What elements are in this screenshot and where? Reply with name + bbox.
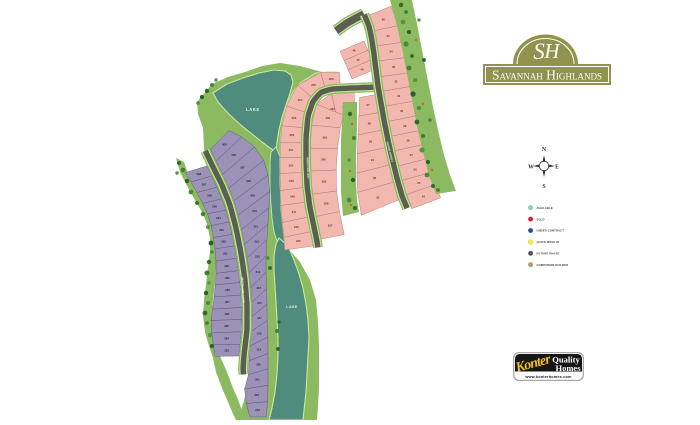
svg-text:310: 310	[252, 209, 257, 213]
svg-text:36: 36	[382, 17, 386, 21]
svg-text:LAKE: LAKE	[286, 305, 298, 309]
svg-text:289: 289	[225, 276, 230, 280]
svg-text:27: 27	[410, 153, 414, 157]
svg-text:315: 315	[256, 286, 261, 290]
svg-text:S: S	[542, 184, 545, 190]
svg-text:255: 255	[311, 83, 316, 87]
svg-text:285: 285	[224, 324, 229, 328]
svg-text:317: 317	[257, 316, 262, 320]
svg-text:311: 311	[253, 225, 258, 229]
svg-text:28: 28	[406, 138, 410, 142]
svg-text:COMPANION BUILDER: COMPANION BUILDER	[537, 263, 569, 267]
svg-text:318: 318	[257, 332, 262, 336]
svg-text:260: 260	[321, 157, 326, 161]
svg-text:ABERCORN WAY: ABERCORN WAY	[306, 157, 311, 179]
svg-text:251: 251	[289, 148, 294, 152]
svg-text:31: 31	[397, 94, 401, 98]
svg-text:293: 293	[219, 228, 224, 232]
svg-text:254: 254	[298, 98, 303, 102]
svg-text:262: 262	[326, 116, 331, 120]
svg-text:45: 45	[356, 58, 360, 62]
svg-text:306: 306	[231, 153, 236, 157]
svg-text:320: 320	[256, 363, 261, 367]
svg-text:297: 297	[202, 183, 207, 187]
svg-text:Savannah Highlands: Savannah Highlands	[492, 68, 602, 83]
svg-text:35: 35	[387, 34, 391, 38]
svg-text:246: 246	[294, 225, 299, 229]
svg-text:284: 284	[224, 337, 229, 341]
svg-text:250: 250	[289, 163, 294, 167]
svg-text:34: 34	[389, 50, 393, 54]
svg-text:46: 46	[352, 49, 356, 53]
svg-text:24: 24	[422, 194, 426, 198]
svg-text:296: 296	[207, 194, 212, 198]
svg-text:257: 257	[328, 223, 333, 227]
svg-text:FUTURE PHASE: FUTURE PHASE	[537, 252, 560, 256]
svg-text:253: 253	[292, 116, 297, 120]
svg-text:314: 314	[256, 270, 261, 274]
svg-text:319: 319	[256, 347, 261, 351]
svg-text:W: W	[528, 165, 534, 171]
svg-text:95: 95	[369, 140, 373, 144]
svg-text:249: 249	[289, 179, 294, 183]
svg-text:QUICK MOVE IN: QUICK MOVE IN	[537, 240, 560, 244]
svg-text:298: 298	[196, 172, 201, 176]
svg-text:316: 316	[257, 301, 262, 305]
svg-text:29: 29	[403, 124, 407, 128]
svg-text:33: 33	[392, 65, 396, 69]
svg-text:256: 256	[329, 77, 334, 81]
svg-text:307: 307	[240, 166, 245, 170]
svg-text:93: 93	[373, 176, 377, 180]
svg-text:247: 247	[292, 210, 297, 214]
svg-text:295: 295	[212, 205, 217, 209]
svg-text:309: 309	[250, 194, 255, 198]
svg-text:94: 94	[371, 158, 375, 162]
svg-text:291: 291	[223, 252, 228, 256]
svg-text:44: 44	[360, 67, 364, 71]
svg-text:32: 32	[394, 80, 398, 84]
svg-text:294: 294	[216, 216, 221, 220]
svg-text:259: 259	[322, 180, 327, 184]
svg-text:305: 305	[222, 143, 227, 147]
svg-text:97: 97	[367, 103, 371, 107]
svg-text:AVAILABLE: AVAILABLE	[537, 206, 553, 210]
svg-text:323: 323	[255, 408, 260, 412]
svg-text:26: 26	[414, 167, 418, 171]
svg-text:E: E	[555, 165, 559, 171]
svg-text:322: 322	[254, 393, 259, 397]
svg-text:288: 288	[225, 288, 230, 292]
svg-text:96: 96	[368, 122, 372, 126]
svg-text:www.konterhomes.com: www.konterhomes.com	[524, 375, 572, 379]
svg-text:313: 313	[255, 255, 260, 259]
svg-text:92: 92	[376, 195, 380, 199]
svg-text:290: 290	[224, 264, 229, 268]
svg-text:286: 286	[224, 312, 229, 316]
svg-text:308: 308	[246, 179, 251, 183]
svg-text:312: 312	[254, 240, 259, 244]
svg-text:248: 248	[290, 195, 295, 199]
svg-text:292: 292	[221, 240, 226, 244]
svg-text:30: 30	[400, 109, 404, 113]
svg-text:283: 283	[224, 348, 229, 352]
svg-text:245: 245	[296, 239, 301, 243]
svg-text:321: 321	[255, 377, 260, 381]
svg-text:LAKE: LAKE	[246, 107, 260, 112]
svg-text:252: 252	[289, 133, 294, 137]
svg-text:SOLD: SOLD	[537, 217, 545, 221]
svg-text:Homes: Homes	[555, 363, 581, 373]
svg-text:261: 261	[322, 135, 327, 139]
svg-text:25: 25	[417, 181, 421, 185]
svg-text:UNDER CONTRACT: UNDER CONTRACT	[537, 229, 565, 233]
svg-text:H: H	[543, 39, 561, 63]
svg-text:287: 287	[225, 300, 230, 304]
svg-text:258: 258	[324, 201, 329, 205]
